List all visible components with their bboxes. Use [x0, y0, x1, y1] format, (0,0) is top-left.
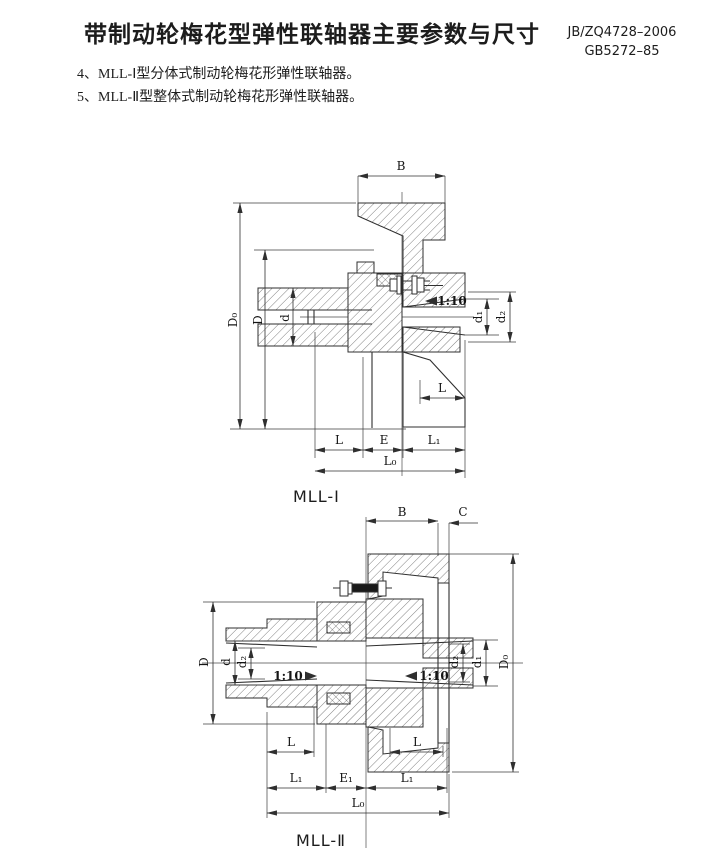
fig2-dim-D0: D₀ [497, 655, 511, 670]
fig2-dim-L1-left: L₁ [290, 771, 303, 785]
fig1-section-hatching [258, 203, 465, 352]
document-page: 带制动轮梅花型弹性联轴器主要参数与尺寸 JB/ZQ4728–2006 GB527… [0, 0, 725, 855]
fig1-dim-d: d [278, 314, 292, 322]
fig2-bolt [333, 581, 392, 596]
fig2-dim-d2-right: d₂ [447, 656, 461, 669]
drawings-canvas: B D₀ D d d₁ d₂ 1:10 L L E L₁ L₀ [0, 0, 725, 855]
fig1-dim-B: B [397, 159, 406, 173]
fig1-dim-L: L [335, 433, 343, 447]
fig2-dim-E1: E₁ [339, 771, 353, 785]
fig2-right-flange-bottom [366, 688, 423, 727]
fig1-dim-d2: d₂ [494, 311, 508, 324]
fig1-dim-L1: L₁ [428, 433, 441, 447]
fig2-left-hub-bottom [226, 685, 317, 707]
fig1-flange-boss [357, 262, 374, 273]
figure-mll2-drawing: B C D₀ D d d₂ d₂ d₁ 1:10 1:10 L L L₁ E₁ … [197, 505, 523, 848]
figure1-caption: MLL-Ⅰ [293, 487, 340, 506]
fig2-taper-arrow-right [405, 672, 417, 681]
fig2-dimension-lines [213, 521, 513, 813]
fig2-taper-label-left: 1:10 [273, 669, 302, 683]
fig1-dim-D0: D₀ [226, 313, 240, 328]
fig2-dim-d1: d₁ [470, 656, 484, 669]
fig1-dim-L0: L₀ [384, 454, 397, 468]
fig2-dim-L-left: L [287, 735, 295, 749]
figure-mll1-drawing: B D₀ D d d₁ d₂ 1:10 L L E L₁ L₀ [226, 159, 516, 478]
fig2-dim-d2-left: d₂ [235, 656, 249, 669]
fig2-right-flange-top [366, 599, 423, 638]
fig1-taper-label: 1:10 [437, 294, 466, 308]
fig2-dim-L1-right: L₁ [401, 771, 414, 785]
fig2-elastomer-bottom [327, 693, 350, 704]
fig2-left-hub-top [226, 619, 317, 641]
fig2-rim-bottom [368, 727, 449, 772]
fig1-dim-d1: d₁ [471, 311, 485, 324]
fig1-dim-L-side: L [438, 381, 446, 395]
fig2-dim-B: B [398, 505, 407, 519]
fig2-elastomer-top [327, 622, 350, 633]
fig2-taper-label-right: 1:10 [419, 669, 448, 683]
figure2-caption: MLL-Ⅱ [296, 831, 346, 850]
fig2-dim-L-right: L [413, 735, 421, 749]
fig1-left-hub-lower [258, 324, 348, 346]
fig1-dim-E: E [380, 433, 389, 447]
fig2-dim-L0: L₀ [352, 796, 365, 810]
fig2-dim-D: D [197, 657, 211, 667]
fig1-dim-D: D [251, 315, 265, 325]
fig2-dim-C: C [458, 505, 467, 519]
fig2-dim-d: d [219, 658, 233, 666]
fig1-left-hub-upper [258, 288, 348, 310]
